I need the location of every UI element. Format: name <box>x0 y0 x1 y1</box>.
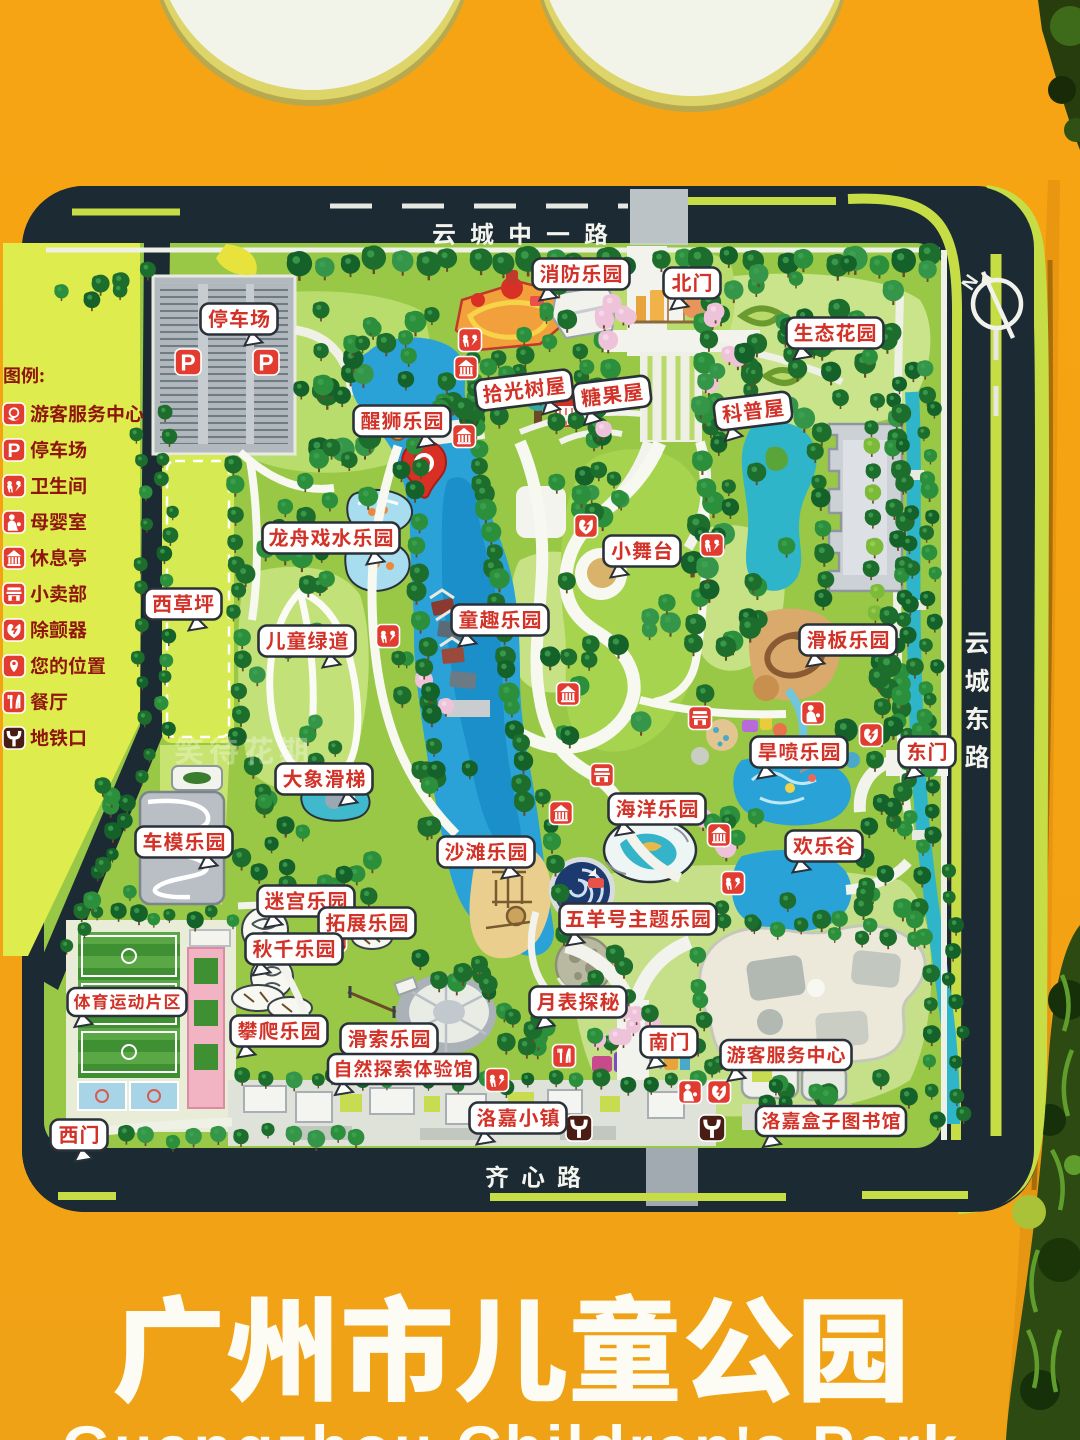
svg-text:P: P <box>258 349 273 375</box>
svg-text:Guangzhou Children's Park: Guangzhou Children's Park <box>62 1414 961 1440</box>
svg-text:P: P <box>180 349 195 375</box>
svg-text:P: P <box>8 440 21 462</box>
